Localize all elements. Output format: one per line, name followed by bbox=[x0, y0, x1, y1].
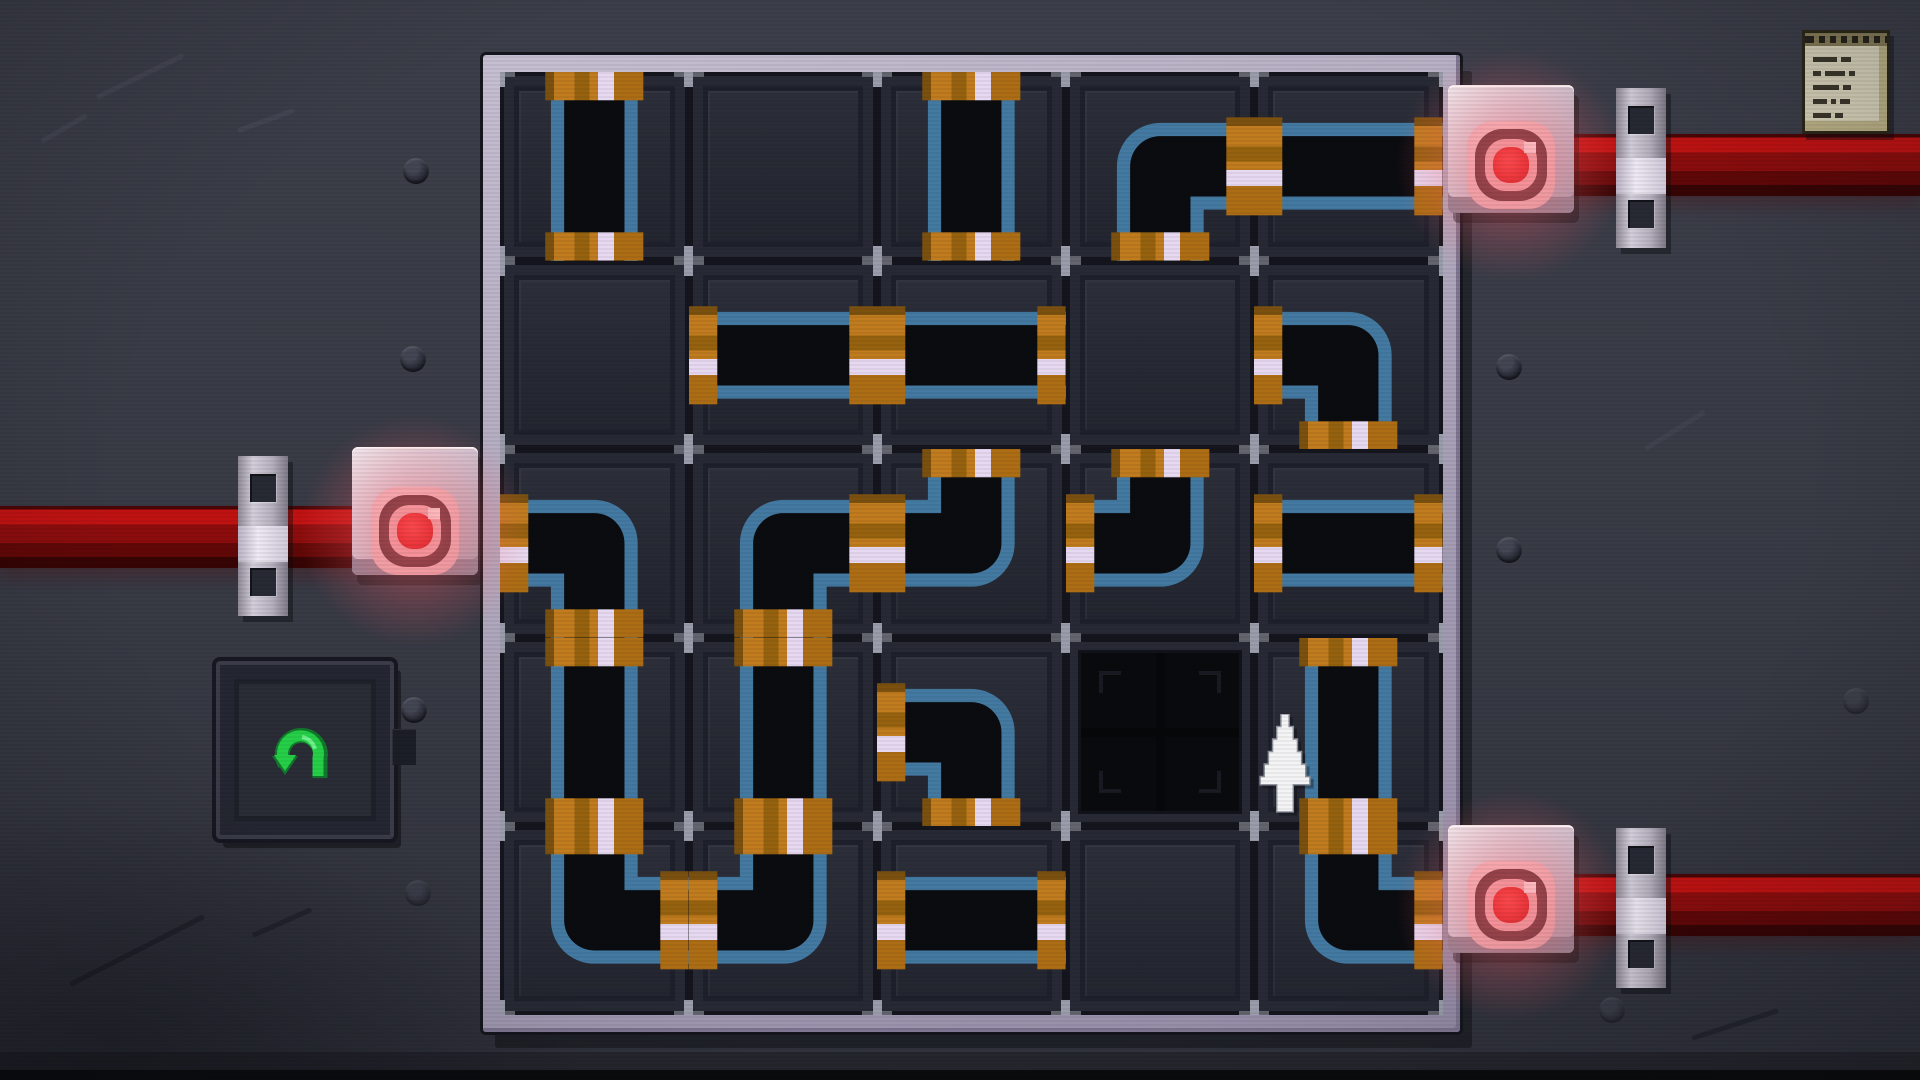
pipe-h bbox=[689, 261, 878, 450]
grid-cell-r2c2[interactable] bbox=[881, 453, 1062, 634]
notes-icon[interactable] bbox=[1802, 30, 1890, 134]
cell-plate bbox=[703, 86, 864, 247]
grid-tick bbox=[1439, 434, 1444, 464]
grid-tick bbox=[684, 623, 693, 653]
notepad-binding bbox=[1805, 33, 1887, 46]
pipe-h bbox=[877, 261, 1066, 450]
grid-tick bbox=[1250, 1000, 1259, 1015]
missing-cell-hole bbox=[1078, 650, 1243, 815]
pipe-nw bbox=[689, 826, 878, 1015]
grid-tick bbox=[500, 246, 505, 276]
scratch-mark bbox=[252, 907, 313, 938]
grid-tick bbox=[684, 1000, 693, 1015]
pipe-clamp bbox=[238, 456, 288, 616]
grid-tick bbox=[1250, 434, 1259, 464]
pipe-nw bbox=[877, 449, 1066, 638]
scratch-mark bbox=[96, 53, 184, 100]
grid-cell-r0c3[interactable] bbox=[1070, 76, 1251, 257]
grid-tick bbox=[873, 1000, 882, 1015]
valve-red-light bbox=[1467, 121, 1555, 209]
bolt-hole bbox=[1628, 200, 1654, 228]
grid-cell-r1c4[interactable] bbox=[1258, 265, 1439, 446]
scratch-mark bbox=[1691, 1008, 1778, 1041]
button-knob bbox=[392, 729, 416, 765]
pipe-grid-frame bbox=[483, 55, 1460, 1032]
pipe-v bbox=[500, 72, 689, 261]
grid-cell-r0c1 bbox=[693, 76, 874, 257]
grid-cell-r1c2[interactable] bbox=[881, 265, 1062, 446]
pipe-ne bbox=[500, 826, 689, 1015]
pipe-h bbox=[1254, 72, 1443, 261]
pipe-sw bbox=[500, 449, 689, 638]
grid-cell-r2c1[interactable] bbox=[693, 453, 874, 634]
grid-tick bbox=[500, 623, 505, 653]
grid-tick bbox=[873, 623, 882, 653]
grid-cell-r2c3[interactable] bbox=[1070, 453, 1251, 634]
pipe-se bbox=[1066, 72, 1255, 261]
grid-cell-r3c1[interactable] bbox=[693, 642, 874, 823]
grid-tick bbox=[1439, 623, 1444, 653]
grid-cell-r1c1[interactable] bbox=[693, 265, 874, 446]
grid-cell-r4c3 bbox=[1070, 830, 1251, 1011]
grid-tick bbox=[1439, 811, 1444, 841]
bolt-hole bbox=[1628, 106, 1654, 134]
pipe-v bbox=[877, 72, 1066, 261]
undo-arrow-icon bbox=[255, 700, 355, 800]
grid-tick bbox=[1250, 811, 1259, 841]
grid-tick bbox=[873, 246, 882, 276]
bolt-hole bbox=[250, 474, 276, 502]
grid-cell-r4c4[interactable] bbox=[1258, 830, 1439, 1011]
grid-tick bbox=[1061, 434, 1070, 464]
grid-cell-r2c0[interactable] bbox=[504, 453, 685, 634]
grid-cell-r0c2[interactable] bbox=[881, 76, 1062, 257]
screw-icon bbox=[1496, 354, 1522, 380]
scratch-mark bbox=[1644, 410, 1706, 451]
grid-tick bbox=[873, 811, 882, 841]
grid-tick bbox=[1061, 72, 1070, 87]
grid-tick bbox=[500, 811, 505, 841]
screw-icon bbox=[403, 158, 429, 184]
grid-cell-r3c2[interactable] bbox=[881, 642, 1062, 823]
screw-icon bbox=[1599, 997, 1625, 1023]
supply-pipe-left bbox=[0, 506, 360, 568]
bolt-hole bbox=[250, 568, 276, 596]
grid-tick bbox=[684, 246, 693, 276]
grid-cell-r3c0[interactable] bbox=[504, 642, 685, 823]
grid-tick bbox=[684, 72, 693, 87]
screw-icon bbox=[405, 880, 431, 906]
screw-icon bbox=[401, 697, 427, 723]
grid-tick bbox=[1250, 72, 1259, 87]
screw-icon bbox=[1843, 688, 1869, 714]
scratch-mark bbox=[237, 108, 295, 133]
grid-tick bbox=[684, 811, 693, 841]
pipe-nw bbox=[1066, 449, 1255, 638]
grid-tick bbox=[1061, 246, 1070, 276]
screw-icon bbox=[400, 346, 426, 372]
grid-tick bbox=[684, 434, 693, 464]
grid-cell-r0c0[interactable] bbox=[504, 76, 685, 257]
pipe-v bbox=[500, 638, 689, 827]
grid-tick bbox=[1439, 72, 1444, 87]
game-screen bbox=[0, 0, 1920, 1080]
grid-cell-r3c3 bbox=[1070, 642, 1251, 823]
grid-cell-r1c0 bbox=[504, 265, 685, 446]
pipe-se bbox=[689, 449, 878, 638]
bolt-hole bbox=[1628, 846, 1654, 874]
grid-tick bbox=[873, 72, 882, 87]
scratch-mark bbox=[69, 914, 205, 987]
pipe-h bbox=[1254, 449, 1443, 638]
valve-red-light bbox=[371, 487, 459, 575]
bottom-edge bbox=[0, 1070, 1920, 1080]
pipe-grid bbox=[500, 72, 1443, 1015]
grid-cell-r0c4[interactable] bbox=[1258, 76, 1439, 257]
pipe-clamp bbox=[1616, 828, 1666, 988]
bottom-band bbox=[0, 1052, 1920, 1072]
pipe-h bbox=[877, 826, 1066, 1015]
pipe-clamp bbox=[1616, 88, 1666, 248]
scratch-mark bbox=[40, 113, 88, 143]
grid-tick bbox=[1061, 1000, 1070, 1015]
cursor-up-arrow-icon bbox=[1258, 714, 1312, 814]
grid-tick bbox=[500, 1000, 505, 1015]
valve-red-light bbox=[1467, 861, 1555, 949]
bolt-hole bbox=[1628, 940, 1654, 968]
grid-tick bbox=[1250, 623, 1259, 653]
undo-button[interactable] bbox=[216, 661, 394, 839]
cell-plate bbox=[1080, 840, 1241, 1001]
pipe-sw bbox=[877, 638, 1066, 827]
grid-tick bbox=[1061, 623, 1070, 653]
grid-tick bbox=[500, 434, 505, 464]
grid-tick bbox=[873, 434, 882, 464]
screw-icon bbox=[1496, 537, 1522, 563]
cell-plate bbox=[514, 275, 675, 436]
grid-tick bbox=[500, 72, 505, 87]
grid-cell-r4c2[interactable] bbox=[881, 830, 1062, 1011]
pipe-ne bbox=[1254, 826, 1443, 1015]
grid-tick bbox=[1061, 811, 1070, 841]
grid-tick bbox=[1439, 1000, 1444, 1015]
cell-plate bbox=[1080, 275, 1241, 436]
grid-tick bbox=[1250, 246, 1259, 276]
grid-tick bbox=[1439, 246, 1444, 276]
grid-cell-r4c1[interactable] bbox=[693, 830, 874, 1011]
grid-cell-r2c4[interactable] bbox=[1258, 453, 1439, 634]
grid-cell-r4c0[interactable] bbox=[504, 830, 685, 1011]
pipe-sw bbox=[1254, 261, 1443, 450]
pipe-v bbox=[689, 638, 878, 827]
grid-cell-r1c3 bbox=[1070, 265, 1251, 446]
